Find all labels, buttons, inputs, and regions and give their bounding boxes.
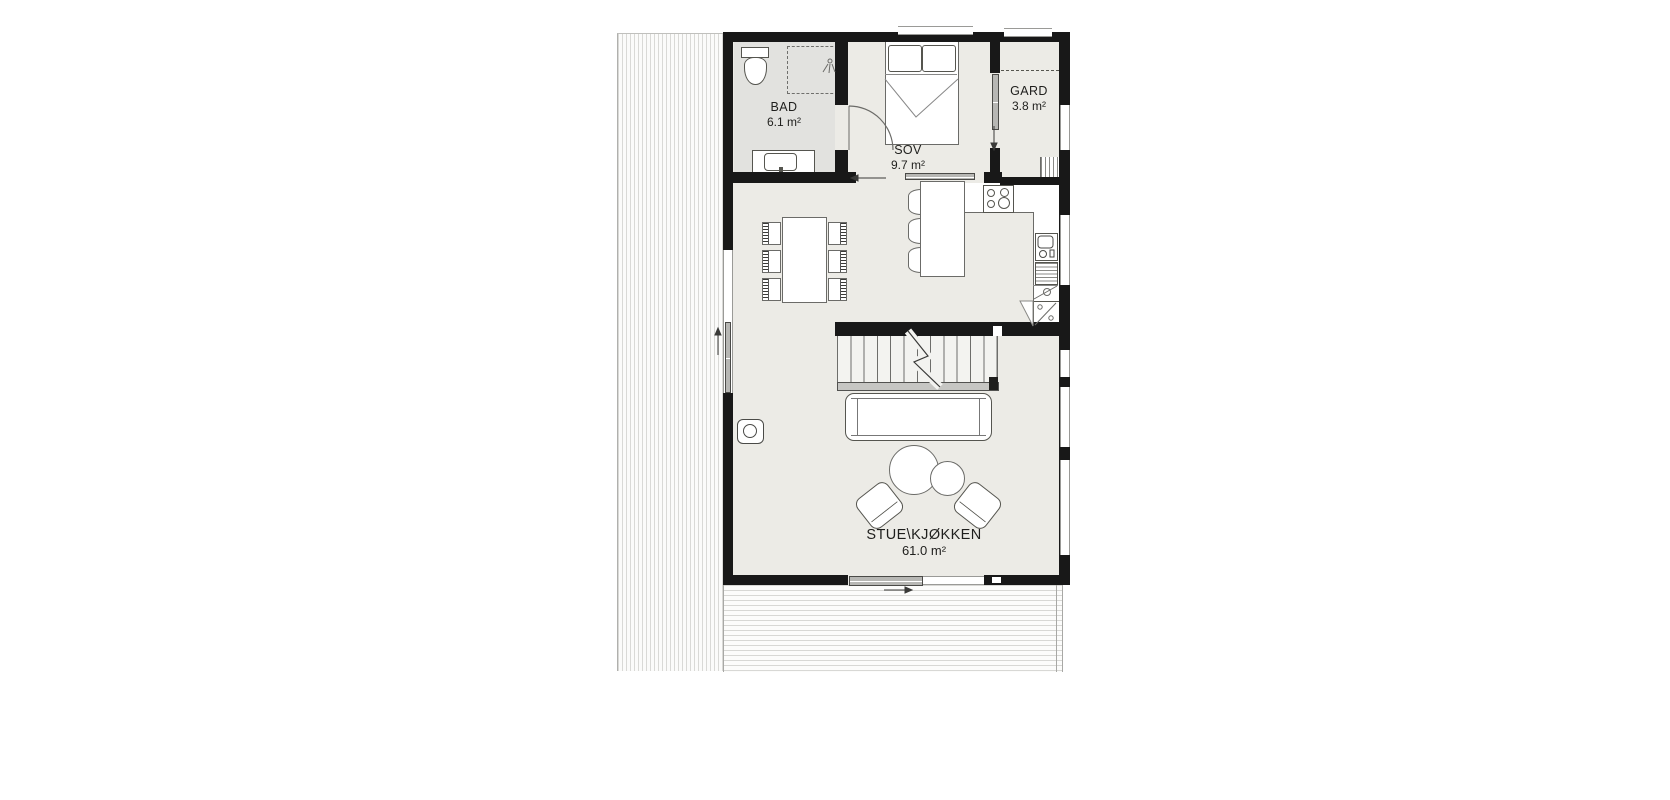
room-label-sov: SOV 9.7 m² xyxy=(858,143,958,173)
window-right-stue-2 xyxy=(1060,387,1070,447)
room-name-sov: SOV xyxy=(858,143,958,158)
room-name-bad: BAD xyxy=(734,100,834,115)
room-label-bad: BAD 6.1 m² xyxy=(734,100,834,130)
bed-pillow-right xyxy=(922,45,956,72)
room-area-gard: 3.8 m² xyxy=(979,99,1079,114)
roof-overhang-hatch xyxy=(617,33,724,671)
wall-sov-gard-bottom xyxy=(990,148,1000,183)
wall-bottom-left xyxy=(723,575,848,585)
room-area-bad: 6.1 m² xyxy=(734,115,834,130)
window-top-gard xyxy=(1004,28,1052,37)
chair-backrest xyxy=(840,251,846,272)
window-top-sov xyxy=(898,26,973,35)
chair-backrest xyxy=(840,223,846,244)
sliding-door-sov-panel xyxy=(905,173,975,180)
room-label-stue: STUE\KJØKKEN 61.0 m² xyxy=(799,527,1049,559)
wall-bad-bottom xyxy=(723,172,848,183)
cooktop-burner xyxy=(987,200,995,208)
chair-backrest xyxy=(840,279,846,300)
kitchen-sink-unit xyxy=(1035,233,1058,261)
dining-chair xyxy=(762,222,781,245)
kitchen-island xyxy=(920,181,965,277)
wall-stair-notch xyxy=(993,326,1002,336)
deck xyxy=(723,585,1063,672)
bed-duvet-line xyxy=(885,74,957,75)
wall-stair xyxy=(835,322,1059,336)
dining-chair xyxy=(828,222,847,245)
dining-chair xyxy=(828,278,847,301)
wall-gard-bottom xyxy=(1000,177,1059,185)
chair-backrest xyxy=(763,279,769,300)
room-name-gard: GARD xyxy=(979,84,1079,99)
dining-chair xyxy=(762,250,781,273)
stair-handrail xyxy=(837,382,999,391)
sofa-armrest xyxy=(857,398,858,436)
window-bottom xyxy=(922,576,984,585)
shower-area xyxy=(787,46,838,94)
dining-chair xyxy=(762,278,781,301)
bed-pillow-left xyxy=(888,45,922,72)
floor-plan: BAD 6.1 m² SOV 9.7 m² GARD 3.8 m² STUE\K… xyxy=(0,0,1670,800)
wall-left-lower xyxy=(723,393,733,585)
wood-stove-flue xyxy=(743,424,757,438)
wall-sov-bottom-stub xyxy=(848,172,856,183)
window-right-kitchen xyxy=(1060,215,1070,285)
room-name-stue: STUE\KJØKKEN xyxy=(799,527,1049,543)
wall-bottom-notch xyxy=(992,577,1001,583)
staircase xyxy=(837,336,998,382)
sofa-armrest xyxy=(979,398,980,436)
chair-backrest xyxy=(763,223,769,244)
room-area-stue: 61.0 m² xyxy=(799,543,1049,559)
cooktop-burner xyxy=(998,197,1010,209)
sliding-door-left-panel xyxy=(725,322,731,393)
gard-shelf xyxy=(1040,157,1060,177)
corner-cabinet xyxy=(1033,285,1058,301)
sofa xyxy=(845,393,992,441)
dining-chair xyxy=(828,250,847,273)
deck-edge-line xyxy=(1056,585,1057,672)
stair-newel xyxy=(989,377,998,390)
sliding-door-bottom-panel xyxy=(849,576,923,586)
wall-bad-right-upper xyxy=(835,42,848,105)
window-right-stue-3 xyxy=(1060,460,1070,555)
window-right-stue-1 xyxy=(1060,350,1070,377)
cooktop-burner xyxy=(987,189,995,197)
chair-backrest xyxy=(763,251,769,272)
window-left xyxy=(723,250,733,320)
wall-left-upper xyxy=(723,42,733,250)
dining-table xyxy=(782,217,827,303)
dishwasher xyxy=(1035,262,1058,285)
coffee-table-small xyxy=(930,461,965,496)
cooktop-burner xyxy=(1000,188,1009,197)
sofa-cushion-line xyxy=(851,398,986,436)
room-area-sov: 9.7 m² xyxy=(858,158,958,173)
room-label-gard: GARD 3.8 m² xyxy=(979,84,1079,114)
wardrobe-dashed-front xyxy=(1001,70,1059,72)
wall-sov-gard-top xyxy=(990,42,1000,73)
